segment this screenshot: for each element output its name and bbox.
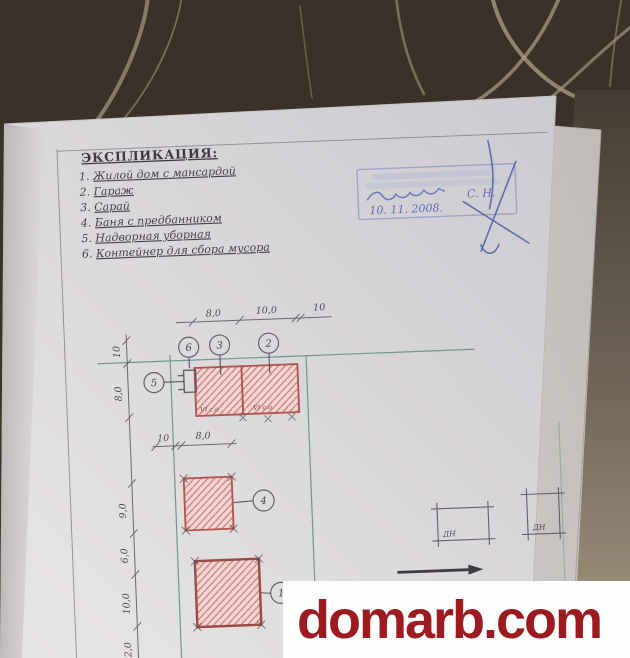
building-mark: VI с.о <box>200 405 219 414</box>
dimension-label: 9,0 <box>118 503 130 519</box>
dimension-label: 10,0 <box>256 305 278 317</box>
dimension-label: 10 <box>112 346 123 359</box>
building-garage: VI с.о <box>241 364 299 414</box>
explication-item-number: 3. <box>80 201 91 214</box>
dimension-label: 8,0 <box>113 386 125 402</box>
watermark: domarb.com <box>283 581 630 658</box>
callout-number: 5 <box>151 378 158 389</box>
building-house <box>191 555 266 632</box>
explication-item-number: 4. <box>80 216 92 229</box>
callout-number: 3 <box>216 340 223 351</box>
explication-item-number: 6. <box>82 247 93 260</box>
dimension-label: 10 <box>313 302 326 313</box>
explication-item-label: Гараж <box>92 184 134 199</box>
scene: ЭКСПЛИКАЦИЯ: 1. Жилой дом с мансардой 2.… <box>0 0 630 658</box>
dimension-label: 2,0 <box>123 642 135 658</box>
explication-item-label: Сарай <box>94 199 130 213</box>
dimension-label: 8,0 <box>206 308 222 320</box>
callout-number: 4 <box>259 496 267 507</box>
dn-label: ДН <box>442 529 456 539</box>
photo-of-site-plan-document: ЭКСПЛИКАЦИЯ: 1. Жилой дом с мансардой 2.… <box>0 0 630 658</box>
dimension-label: 10,0 <box>121 593 133 615</box>
dimension-label: 8,0 <box>195 430 211 442</box>
explication-item-number: 5. <box>81 232 92 245</box>
callout-number: 2 <box>264 339 272 350</box>
building-bath <box>180 473 238 535</box>
dn-label: ДН <box>532 523 546 533</box>
watermark-text: domarb.com <box>283 593 601 647</box>
explication-item-number: 2. <box>78 185 90 198</box>
dimension-label: 6,0 <box>119 548 131 564</box>
building-mark: VI с.о <box>253 403 272 412</box>
building-shed: VI с.о <box>194 366 243 416</box>
explication-item-number: 1. <box>79 170 90 183</box>
dimension-label: 10 <box>157 433 170 444</box>
callout-number: 6 <box>185 343 192 354</box>
